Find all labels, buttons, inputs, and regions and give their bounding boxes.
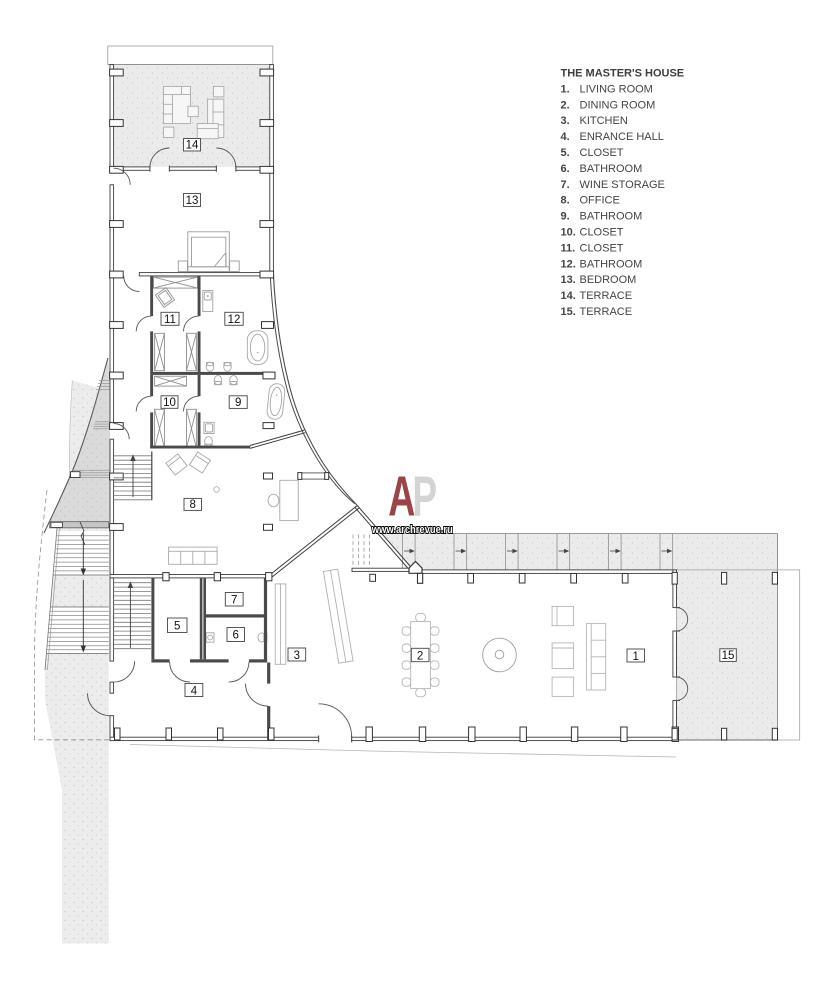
svg-text:12.: 12.	[561, 258, 576, 270]
svg-text:3.: 3.	[561, 115, 570, 127]
svg-text:3: 3	[294, 650, 300, 662]
svg-text:TERRACE: TERRACE	[580, 290, 633, 302]
svg-text:13.: 13.	[561, 274, 576, 286]
svg-text:7: 7	[231, 594, 237, 606]
svg-text:A: A	[388, 465, 415, 529]
svg-text:BEDROOM: BEDROOM	[580, 274, 637, 286]
svg-text:8: 8	[189, 499, 195, 511]
svg-text:ENRANCE HALL: ENRANCE HALL	[580, 131, 664, 143]
svg-text:15.: 15.	[561, 306, 576, 318]
svg-text:14: 14	[186, 140, 199, 152]
svg-text:10: 10	[163, 397, 176, 409]
svg-text:5: 5	[174, 620, 180, 632]
svg-text:15: 15	[722, 650, 735, 662]
svg-text:BATHROOM: BATHROOM	[580, 163, 643, 175]
svg-text:WINE STORAGE: WINE STORAGE	[580, 179, 665, 191]
svg-text:1: 1	[632, 651, 638, 663]
svg-text:OFFICE: OFFICE	[580, 195, 620, 207]
svg-text:THE MASTER'S HOUSE: THE MASTER'S HOUSE	[561, 68, 685, 80]
svg-text:6.: 6.	[561, 163, 570, 175]
svg-text:12: 12	[228, 314, 241, 326]
svg-text:9: 9	[235, 397, 241, 409]
svg-text:BATHROOM: BATHROOM	[580, 211, 643, 223]
svg-text:11: 11	[164, 314, 176, 326]
svg-text:KITCHEN: KITCHEN	[580, 115, 628, 127]
svg-text:4.: 4.	[561, 131, 570, 143]
svg-text:DINING ROOM: DINING ROOM	[580, 99, 656, 111]
svg-text:LIVING ROOM: LIVING ROOM	[580, 83, 653, 95]
svg-text:9.: 9.	[561, 211, 570, 223]
svg-text:2.: 2.	[561, 99, 570, 111]
svg-text:4: 4	[191, 685, 198, 697]
svg-text:11.: 11.	[561, 242, 576, 254]
svg-text:10.: 10.	[561, 227, 576, 239]
svg-text:CLOSET: CLOSET	[580, 242, 624, 254]
svg-text:TERRACE: TERRACE	[580, 306, 633, 318]
svg-text:13: 13	[186, 195, 199, 207]
svg-text:P: P	[412, 465, 437, 529]
svg-text:1.: 1.	[561, 83, 570, 95]
svg-text:5.: 5.	[561, 147, 570, 159]
svg-text:7.: 7.	[561, 179, 570, 191]
svg-text:CLOSET: CLOSET	[580, 147, 624, 159]
svg-text:www.archrevue.ru: www.archrevue.ru	[371, 524, 453, 536]
svg-text:6: 6	[232, 629, 238, 641]
svg-text:14.: 14.	[561, 290, 576, 302]
svg-text:CLOSET: CLOSET	[580, 227, 624, 239]
svg-text:8.: 8.	[561, 195, 570, 207]
svg-text:2: 2	[417, 650, 423, 662]
svg-text:BATHROOM: BATHROOM	[580, 258, 643, 270]
